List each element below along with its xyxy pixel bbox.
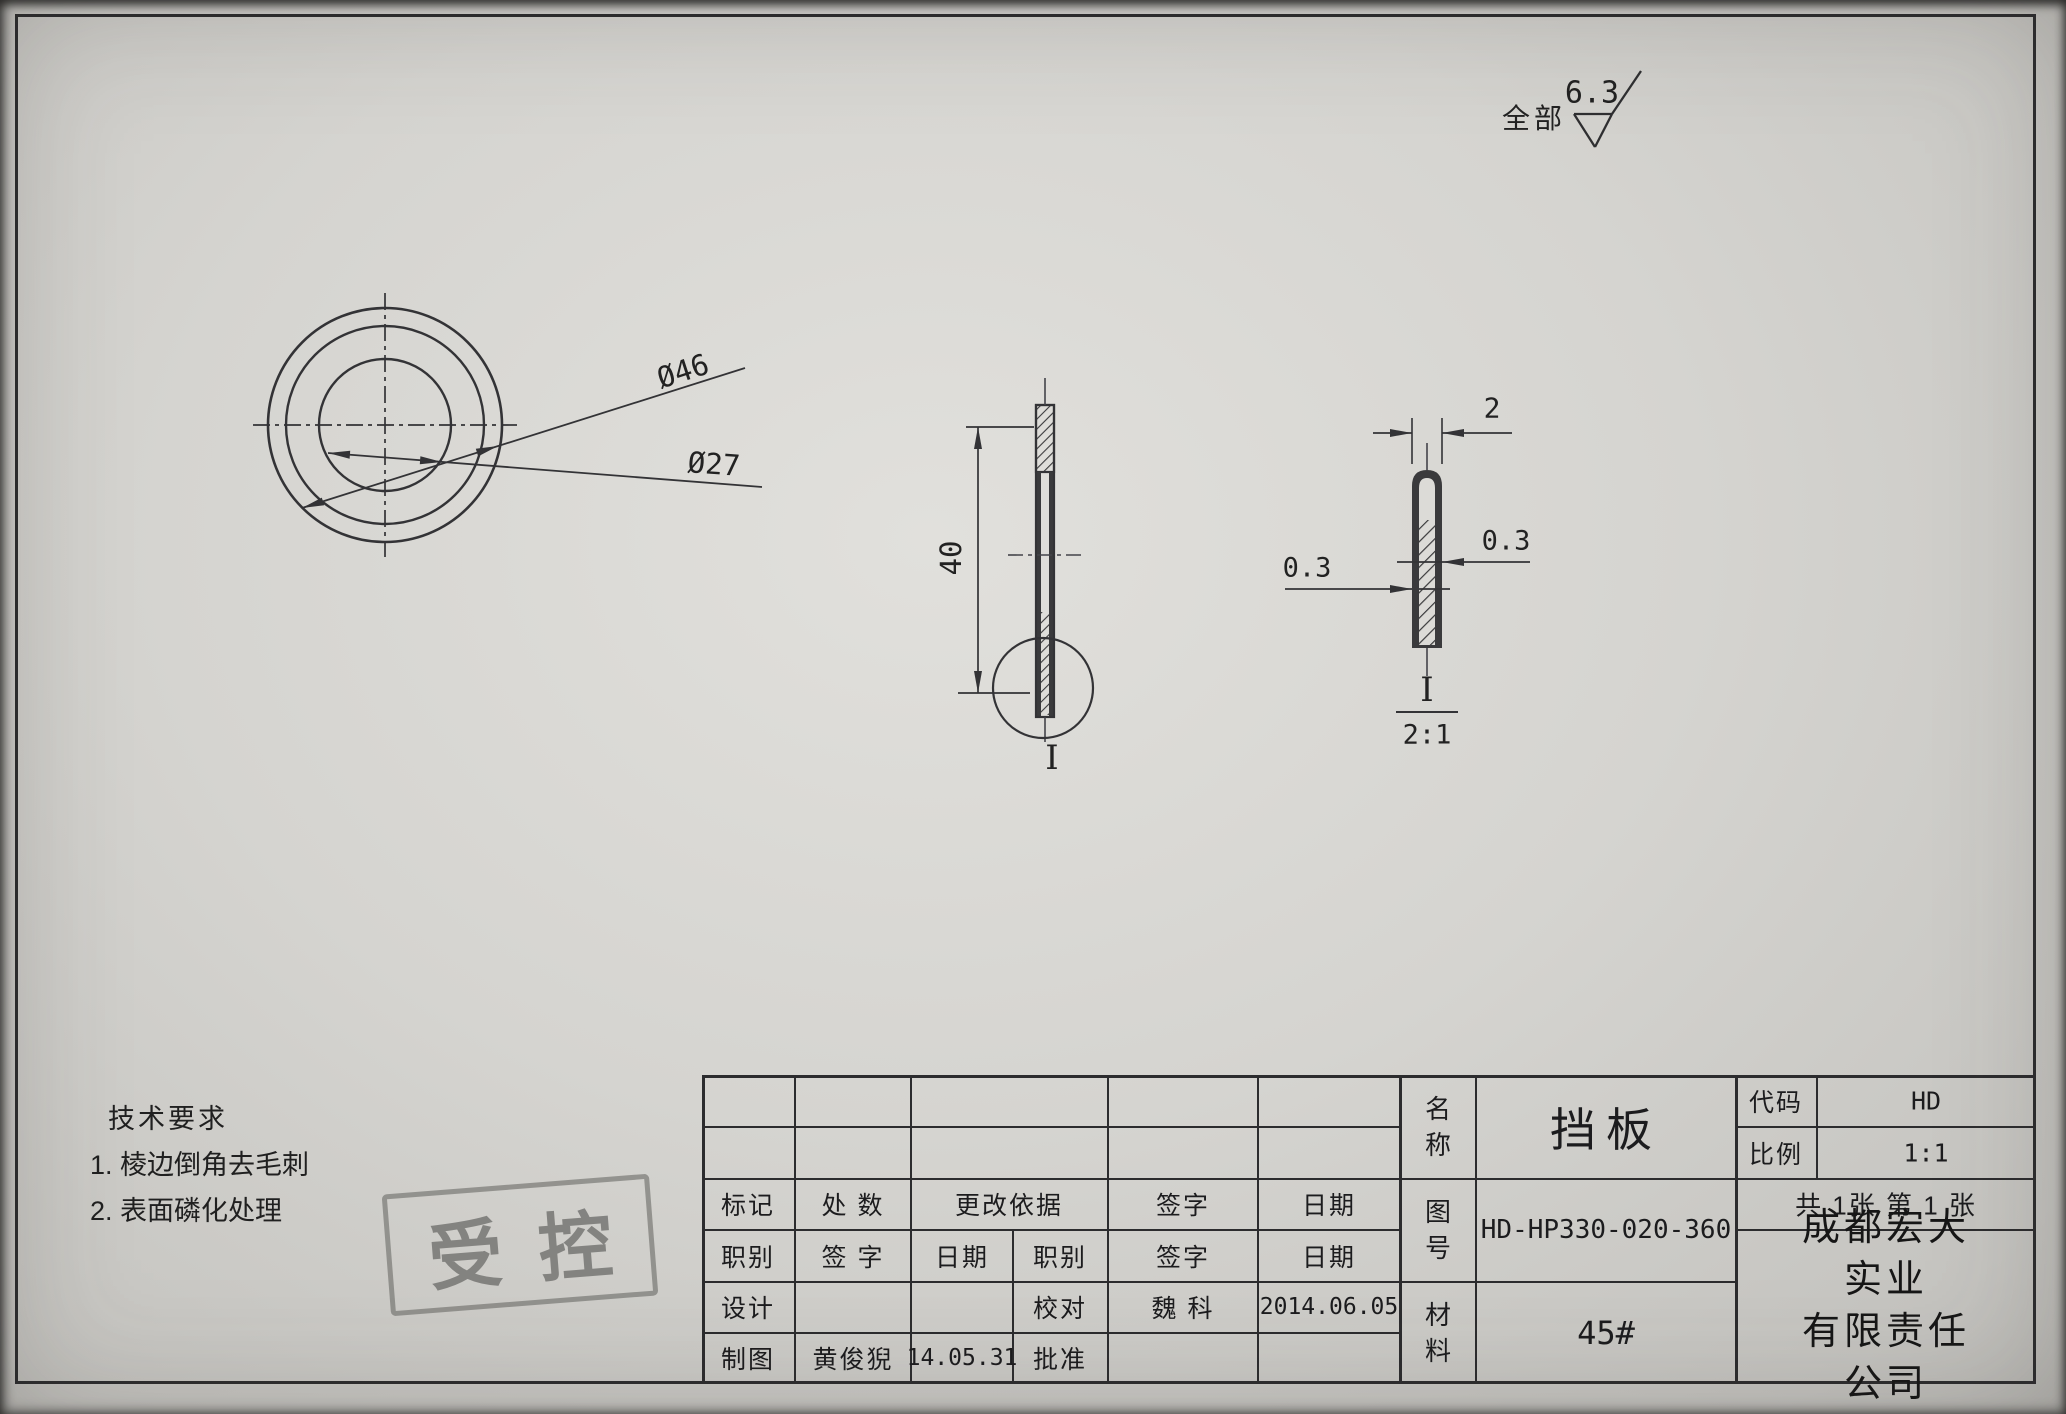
- table-grid-line: [702, 1075, 2036, 1078]
- table-grid-line: [1735, 1075, 1738, 1384]
- table-grid-line: [702, 1281, 1736, 1283]
- part-name: 挡板: [1550, 1094, 1662, 1160]
- tb-check-role: 校对: [1033, 1289, 1087, 1325]
- dim-height: 40: [934, 541, 968, 576]
- tb-header-count: 处 数: [822, 1186, 885, 1222]
- code-value: HD: [1911, 1087, 1941, 1116]
- tb-date-header: 日期: [1302, 1238, 1356, 1274]
- tb-date-header: 日期: [935, 1238, 989, 1274]
- drawing-sheet: 全部 6.3 Ø46 Ø27 40 I 2 0.3 0.3 I 2:1 技术要求…: [0, 0, 2066, 1414]
- tb-design-role: 设计: [721, 1289, 775, 1325]
- company-name: 成都宏大实业 有限责任公司: [1796, 1202, 1976, 1410]
- table-grid-line: [1816, 1075, 1818, 1178]
- tb-sign-header: 签 字: [822, 1238, 885, 1274]
- table-grid-line: [702, 1229, 1400, 1231]
- tb-role-header: 职别: [721, 1238, 775, 1274]
- company-line: 成都宏大实业: [1796, 1202, 1976, 1306]
- tb-approve-role: 批准: [1033, 1340, 1087, 1376]
- table-grid-line: [702, 1075, 705, 1384]
- tb-draft-role: 制图: [721, 1340, 775, 1376]
- tb-material-label: 材料: [1424, 1297, 1452, 1369]
- dim-thickness-right: 0.3: [1482, 526, 1531, 557]
- tb-draft-date: 14.05.31: [907, 1345, 1018, 1371]
- dim-inner-diameter: Ø27: [687, 445, 742, 483]
- surface-finish-value: 6.3: [1565, 76, 1619, 111]
- material-value: 45#: [1577, 1314, 1635, 1352]
- table-grid-line: [1399, 1075, 1402, 1384]
- detail-ref-label: I: [1420, 670, 1433, 710]
- controlled-stamp: 受控: [382, 1174, 659, 1317]
- table-grid-line: [702, 1126, 1400, 1128]
- scale-value: 1:1: [1903, 1139, 1948, 1168]
- tb-role-header: 职别: [1033, 1238, 1087, 1274]
- technical-requirements: 技术要求 1. 棱边倒角去毛刺 2. 表面磷化处理: [90, 1096, 309, 1234]
- surface-finish-prefix: 全部: [1502, 97, 1566, 137]
- drawing-number: HD-HP330-020-360: [1481, 1215, 1731, 1245]
- table-grid-line: [794, 1075, 796, 1384]
- stamp-text: 受控: [388, 1182, 652, 1309]
- tb-sign-header: 签字: [1156, 1238, 1210, 1274]
- table-grid-line: [702, 1332, 1400, 1334]
- tb-draft-sign: 黄俊猊: [812, 1340, 893, 1376]
- tb-header-mark: 标记: [721, 1186, 775, 1222]
- tech-req-title: 技术要求: [108, 1096, 309, 1142]
- tb-check-sign: 魏 科: [1152, 1289, 1215, 1325]
- tb-check-date: 2014.06.05: [1260, 1294, 1398, 1320]
- company-line: 有限责任公司: [1796, 1306, 1976, 1410]
- table-grid-line: [1257, 1075, 1259, 1384]
- tb-header-basis: 更改依据: [955, 1186, 1063, 1222]
- table-grid-line: [1736, 1126, 2036, 1128]
- tb-code-label: 代码: [1749, 1083, 1803, 1119]
- table-grid-line: [1107, 1075, 1109, 1384]
- tb-header-sign: 签字: [1156, 1186, 1210, 1222]
- table-grid-line: [910, 1075, 912, 1384]
- tb-scale-label: 比例: [1749, 1135, 1803, 1171]
- table-grid-line: [1475, 1075, 1477, 1384]
- tb-header-date: 日期: [1302, 1186, 1356, 1222]
- dim-thickness-left: 0.3: [1283, 553, 1332, 584]
- dim-width: 2: [1484, 392, 1501, 425]
- tech-req-item: 2. 表面磷化处理: [90, 1188, 309, 1234]
- tb-name-label: 名称: [1424, 1091, 1452, 1163]
- detail-scale: 2:1: [1403, 720, 1452, 751]
- table-grid-line: [702, 1178, 2036, 1180]
- tech-req-item: 1. 棱边倒角去毛刺: [90, 1142, 309, 1188]
- tb-drawing-no-label: 图号: [1424, 1194, 1452, 1266]
- detail-ref-side: I: [1045, 738, 1058, 778]
